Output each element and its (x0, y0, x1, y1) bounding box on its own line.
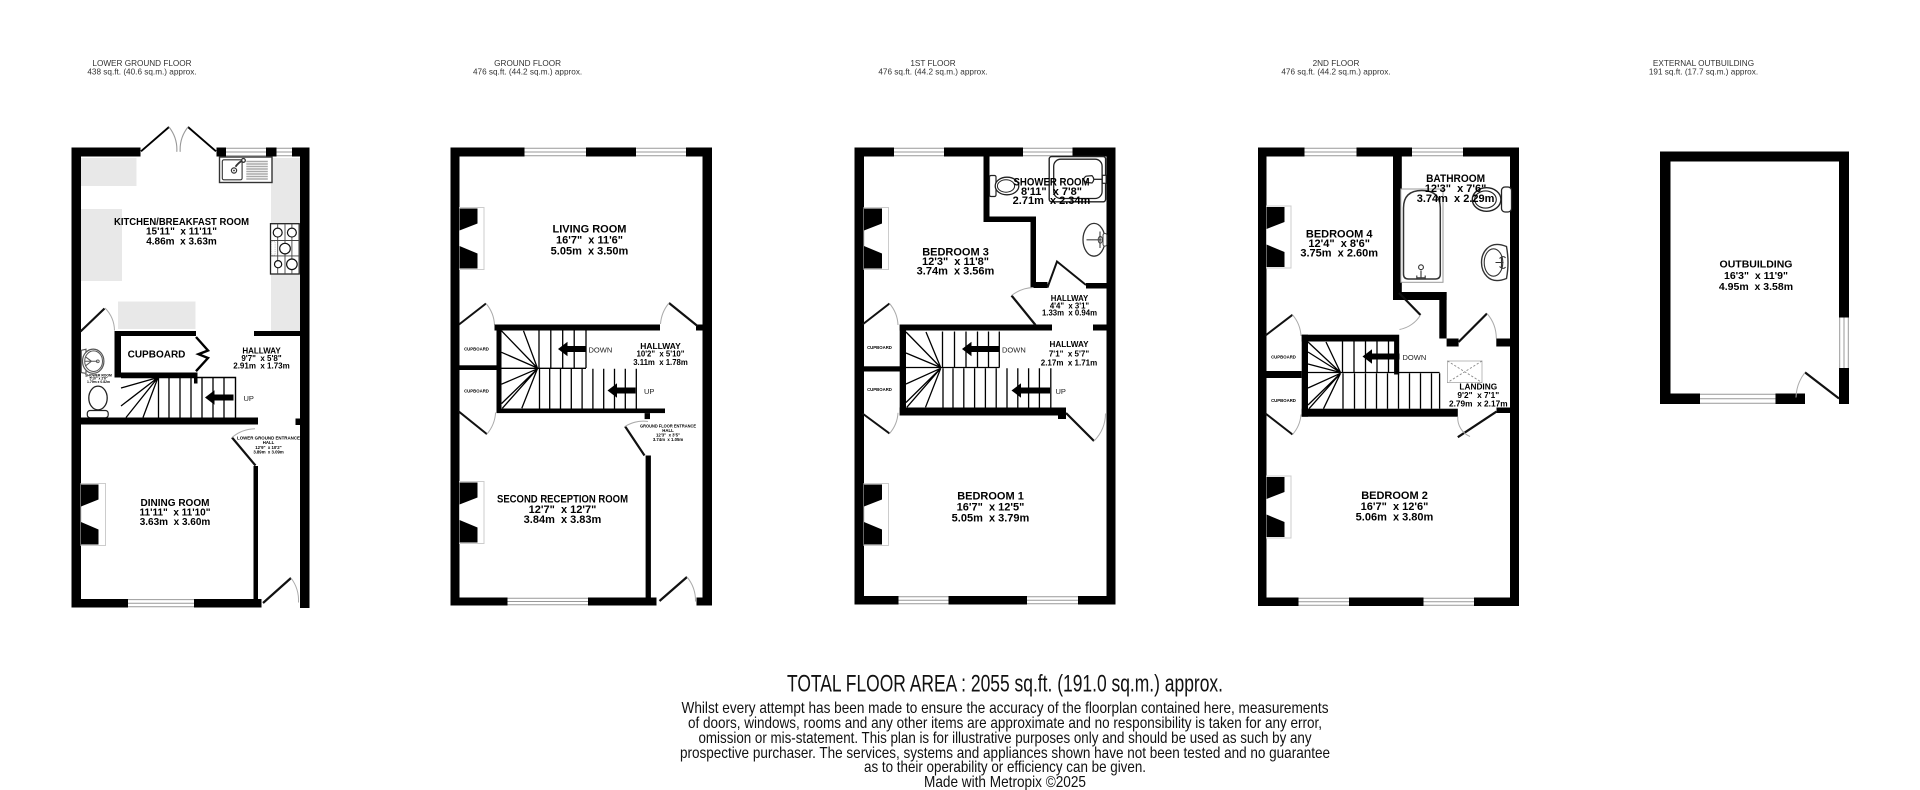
svg-text:CUPBOARD: CUPBOARD (1271, 398, 1296, 403)
svg-text:5.06m x 3.80m: 5.06m x 3.80m (1356, 512, 1434, 524)
svg-text:3.74m x 1.05m: 3.74m x 1.05m (653, 437, 684, 442)
svg-text:5.05m x 3.79m: 5.05m x 3.79m (952, 513, 1030, 525)
svg-text:TOTAL FLOOR AREA : 2055 sq.ft.: TOTAL FLOOR AREA : 2055 sq.ft. (191.0 sq… (787, 671, 1223, 698)
svg-text:3.75m x 2.60m: 3.75m x 2.60m (1300, 247, 1378, 259)
svg-text:DOWN: DOWN (589, 346, 613, 355)
svg-text:3.11m x 1.78m: 3.11m x 1.78m (633, 358, 688, 367)
svg-text:DOWN: DOWN (1403, 353, 1427, 362)
svg-text:CUPBOARD: CUPBOARD (128, 350, 186, 361)
svg-text:2.71m x 2.34m: 2.71m x 2.34m (1013, 195, 1091, 207)
svg-text:4.86m x 3.63m: 4.86m x 3.63m (146, 236, 217, 247)
svg-text:476 sq.ft. (44.2 sq.m.) approx: 476 sq.ft. (44.2 sq.m.) approx. (1281, 68, 1390, 77)
svg-text:7'1" x 5'7": 7'1" x 5'7" (1049, 349, 1090, 358)
svg-text:476 sq.ft. (44.2 sq.m.) approx: 476 sq.ft. (44.2 sq.m.) approx. (473, 68, 582, 77)
svg-text:5.05m x 3.50m: 5.05m x 3.50m (551, 246, 629, 258)
svg-text:191 sq.ft. (17.7 sq.m.) approx: 191 sq.ft. (17.7 sq.m.) approx. (1649, 68, 1758, 77)
svg-text:2.79m x 2.17m: 2.79m x 2.17m (1449, 398, 1508, 408)
svg-text:CUPBOARD: CUPBOARD (867, 345, 892, 350)
svg-text:3.89m x 3.09m: 3.89m x 3.09m (253, 449, 284, 454)
svg-text:UP: UP (1056, 387, 1066, 396)
svg-text:3.74m x 2.29m: 3.74m x 2.29m (1417, 193, 1495, 205)
svg-text:CUPBOARD: CUPBOARD (1271, 355, 1296, 360)
svg-text:3.74m x 3.56m: 3.74m x 3.56m (917, 266, 995, 278)
svg-text:16'3" x 11'9": 16'3" x 11'9" (1724, 270, 1788, 282)
svg-text:CUPBOARD: CUPBOARD (464, 389, 489, 394)
svg-text:3.84m x 3.83m: 3.84m x 3.83m (524, 514, 602, 526)
svg-text:2.91m x 1.73m: 2.91m x 1.73m (233, 361, 289, 370)
svg-text:CUPBOARD: CUPBOARD (867, 387, 892, 392)
svg-text:1.33m x 0.94m: 1.33m x 0.94m (1042, 309, 1097, 318)
svg-text:HALLWAY: HALLWAY (1050, 340, 1090, 349)
svg-text:1.79m x 0.82m: 1.79m x 0.82m (87, 380, 110, 384)
svg-text:438 sq.ft. (40.6 sq.m.) approx: 438 sq.ft. (40.6 sq.m.) approx. (87, 68, 196, 77)
svg-text:2.17m x 1.71m: 2.17m x 1.71m (1041, 359, 1097, 368)
svg-text:3.63m x 3.60m: 3.63m x 3.60m (140, 517, 211, 528)
svg-text:4.95m x 3.58m: 4.95m x 3.58m (1719, 281, 1793, 293)
svg-text:CUPBOARD: CUPBOARD (464, 347, 489, 352)
svg-text:DOWN: DOWN (1002, 346, 1026, 355)
svg-text:UP: UP (244, 394, 254, 403)
svg-text:Made with Metropix ©2025: Made with Metropix ©2025 (924, 774, 1086, 790)
svg-text:476 sq.ft. (44.2 sq.m.) approx: 476 sq.ft. (44.2 sq.m.) approx. (878, 68, 987, 77)
svg-text:OUTBUILDING: OUTBUILDING (1720, 259, 1793, 271)
svg-text:UP: UP (644, 387, 654, 396)
